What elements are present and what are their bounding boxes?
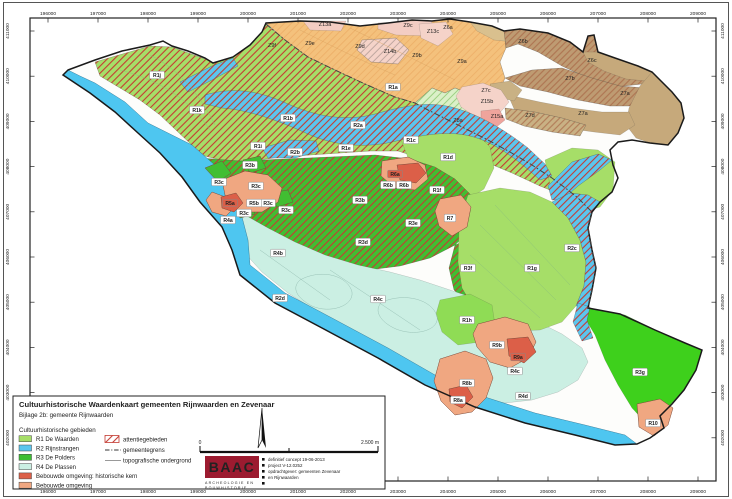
- map-canvas: 1960001960001970001970001980001980001990…: [0, 0, 732, 499]
- y-tick-label: 409000: [720, 113, 726, 129]
- region-label-Z7b: Z7b: [565, 76, 574, 82]
- x-tick-label: 205000: [490, 11, 506, 17]
- baac-sub1: ARCHEOLOGIE EN: [205, 481, 254, 485]
- y-tick-label: 408000: [720, 158, 726, 174]
- x-tick-label: 201000: [290, 489, 306, 495]
- region-label-Z14b: Z14b: [384, 49, 397, 55]
- y-tick-label: 406000: [5, 249, 11, 265]
- region-label-text: R2b: [290, 150, 300, 156]
- x-tick-label: 203000: [390, 11, 406, 17]
- region-label-R8b: R8b: [460, 379, 475, 387]
- scale-end: 2.500 m: [361, 440, 379, 446]
- region-label-text: R4b: [273, 251, 283, 257]
- region-label-Z9d: Z9d: [355, 44, 364, 50]
- region-label-R3e: R3e: [406, 219, 421, 227]
- legend: Cultuurhistorische Waardenkaart gemeente…: [13, 396, 385, 490]
- legend-swatch: [19, 482, 32, 488]
- legend-item-label: R3 De Polders: [36, 456, 75, 462]
- region-label-text: R4c: [510, 369, 520, 375]
- region-label-text: R3b: [355, 198, 365, 204]
- region-label-text: R8a: [453, 398, 463, 404]
- x-tick-label: 204000: [440, 11, 456, 17]
- x-tick-label: 208000: [640, 11, 656, 17]
- x-tick-label: 204000: [440, 489, 456, 495]
- legend-item-label: R2 Rijnstrangen: [36, 446, 79, 452]
- region-label-R7: R7: [444, 214, 456, 222]
- x-tick-label: 196000: [40, 489, 56, 495]
- baac-sub2: BOUWHISTORIE: [205, 486, 248, 490]
- x-tick-label: 207000: [590, 489, 606, 495]
- region-label-R3b: R3b: [243, 161, 258, 169]
- region-label-R1g: R1g: [525, 264, 540, 272]
- region-label-R6b: R6b: [381, 181, 396, 189]
- region-label-Z13c: Z13c: [427, 29, 439, 35]
- region-label-R9b: R9b: [490, 341, 505, 349]
- region-label-text: R3e: [408, 221, 418, 227]
- y-tick-label: 404000: [5, 339, 11, 355]
- region-label-Z6b: Z6b: [518, 39, 527, 45]
- y-tick-label: 402000: [5, 429, 11, 445]
- region-label-R1a: R1a: [386, 83, 401, 91]
- region-label-text: R3b: [245, 163, 255, 169]
- region-label-R6a: R6a: [388, 170, 403, 178]
- x-tick-label: 199000: [190, 489, 206, 495]
- region-label-Z9b: Z9b: [412, 53, 421, 59]
- region-label-text: R1a: [388, 85, 398, 91]
- x-tick-label: 209000: [690, 11, 706, 17]
- y-tick-label: 402000: [720, 429, 726, 445]
- y-tick-label: 405000: [720, 294, 726, 310]
- region-label-text: R4a: [223, 218, 233, 224]
- region-label-text: R8b: [462, 381, 472, 387]
- region-label-R3c: R3c: [261, 199, 276, 207]
- region-label-text: R2d: [275, 296, 285, 302]
- region-label-Z9a: Z9a: [457, 59, 467, 65]
- legend-item-label: Bebouwde omgeving: [36, 484, 92, 490]
- region-label-R4b: R4b: [271, 249, 286, 257]
- region-label-R6b: R6b: [397, 181, 412, 189]
- x-tick-label: 199000: [190, 11, 206, 17]
- region-label-R1i: R1i: [251, 142, 266, 150]
- region-label-R2b: R2b: [288, 148, 303, 156]
- region-label-Z8a: Z8a: [453, 118, 463, 124]
- legend-item-label: R4 De Plassen: [36, 465, 76, 471]
- region-label-text: R1b: [283, 116, 293, 122]
- region-label-R1j: R1j: [150, 71, 165, 79]
- legend-overlay-label: gemeentegrens: [123, 448, 165, 454]
- region-label-R9a: R9a: [511, 353, 526, 361]
- region-label-text: R6a: [390, 172, 400, 178]
- y-tick-label: 407000: [720, 203, 726, 219]
- region-label-R4a: R4a: [221, 216, 236, 224]
- region-label-R3f: R3f: [461, 264, 476, 272]
- region-label-text: R1i: [254, 144, 263, 150]
- region-label-R1b: R1b: [281, 114, 296, 122]
- region-label-text: R9a: [513, 355, 523, 361]
- credit-line: definitief concept 19-06-2013: [268, 457, 325, 462]
- scale-start: 0: [199, 440, 202, 446]
- x-tick-label: 202000: [340, 11, 356, 17]
- legend-title: Cultuurhistorische Waardenkaart gemeente…: [19, 400, 274, 409]
- map-page: 1960001960001970001970001980001980001990…: [0, 0, 732, 499]
- region-label-text: R3f: [464, 266, 473, 272]
- region-label-R3b: R3b: [353, 196, 368, 204]
- region-label-text: R3c: [214, 180, 224, 186]
- region-label-text: R3c: [251, 184, 261, 190]
- x-tick-label: 205000: [490, 489, 506, 495]
- x-tick-label: 206000: [540, 489, 556, 495]
- region-label-text: R3d: [358, 240, 368, 246]
- region-label-R3c: R3c: [237, 209, 252, 217]
- y-tick-label: 403000: [5, 384, 11, 400]
- y-tick-label: 404000: [720, 339, 726, 355]
- attentie-hatch-swatch: [105, 436, 119, 443]
- region-label-Z7a: Z7a: [578, 111, 588, 117]
- x-tick-label: 198000: [140, 489, 156, 495]
- region-label-R3c: R3c: [279, 206, 294, 214]
- region-label-Z9f: Z9f: [268, 43, 276, 49]
- region-label-Z6a: Z6a: [443, 25, 453, 31]
- region-label-R3c: R3c: [249, 182, 264, 190]
- legend-overlay-label: attentiegebieden: [123, 438, 167, 444]
- baac-logo-text: BAAC: [209, 459, 255, 475]
- legend-group-title: Cultuurhistorische gebieden: [19, 427, 96, 434]
- legend-swatch: [19, 473, 32, 479]
- region-label-Z15b: Z15b: [481, 99, 494, 105]
- x-tick-label: 203000: [390, 489, 406, 495]
- region-label-text: R3c: [239, 211, 249, 217]
- region-label-Z13a: Z13a: [319, 22, 332, 28]
- region-label-text: R1f: [433, 188, 442, 194]
- credit-line: opdrachtgever: gemeenten Zevenaar: [268, 469, 341, 474]
- region-label-Z9e: Z9e: [305, 41, 314, 47]
- region-label-text: R3c: [263, 201, 273, 207]
- region-label-text: R5b: [249, 201, 259, 207]
- region-label-text: R6b: [399, 183, 409, 189]
- region-label-text: R1j: [153, 73, 162, 79]
- x-tick-label: 202000: [340, 489, 356, 495]
- region-label-text: R4d: [518, 394, 528, 400]
- y-tick-label: 411000: [5, 23, 11, 39]
- region-label-text: R1g: [527, 266, 537, 272]
- region-label-Z7d: Z7d: [525, 113, 534, 119]
- y-tick-label: 409000: [5, 113, 11, 129]
- x-tick-label: 200000: [240, 11, 256, 17]
- region-label-text: R3g: [635, 370, 645, 376]
- legend-swatch: [19, 436, 32, 442]
- region-label-text: R3c: [281, 208, 291, 214]
- y-tick-label: 410000: [720, 68, 726, 84]
- region-label-text: R7: [447, 216, 454, 222]
- x-tick-label: 198000: [140, 11, 156, 17]
- region-label-text: R10: [648, 421, 658, 427]
- legend-swatch: [19, 464, 32, 470]
- region-label-text: R2c: [567, 246, 577, 252]
- legend-swatch: [19, 445, 32, 451]
- region-label-R2d: R2d: [273, 294, 288, 302]
- credit-line: en Rijnwaarden: [268, 475, 299, 480]
- region-label-R8a: R8a: [451, 396, 466, 404]
- y-tick-label: 408000: [5, 158, 11, 174]
- region-label-text: R5a: [225, 201, 235, 207]
- region-label-Z9c: Z9c: [403, 23, 412, 29]
- legend-swatch: [19, 454, 32, 460]
- region-label-text: R1k: [192, 108, 202, 114]
- region-label-R1k: R1k: [190, 106, 205, 114]
- x-tick-label: 209000: [690, 489, 706, 495]
- region-label-R1f: R1f: [430, 186, 445, 194]
- region-label-Z7c: Z7c: [481, 88, 490, 94]
- region-label-R10: R10: [646, 419, 661, 427]
- legend-subtitle: Bijlage 2b: gemeente Rijnwaarden: [19, 412, 114, 419]
- y-tick-label: 411000: [720, 23, 726, 39]
- region-label-text: R1d: [443, 155, 453, 161]
- region-label-R2c: R2c: [565, 244, 580, 252]
- region-label-Z6c: Z6c: [587, 58, 596, 64]
- region-label-R1e: R1e: [339, 144, 354, 152]
- x-tick-label: 196000: [40, 11, 56, 17]
- x-tick-label: 197000: [90, 489, 106, 495]
- region-label-Z15a: Z15a: [491, 114, 504, 120]
- legend-item-label: R1 De Waarden: [36, 437, 79, 443]
- y-tick-label: 407000: [5, 203, 11, 219]
- region-label-text: R6b: [383, 183, 393, 189]
- y-tick-label: 410000: [5, 68, 11, 84]
- x-tick-label: 207000: [590, 11, 606, 17]
- legend-item-label: Bebouwde omgeving: historische kern: [36, 474, 137, 480]
- region-label-R1c: R1c: [404, 136, 419, 144]
- region-label-R5a: R5a: [223, 199, 238, 207]
- region-label-text: R2a: [353, 123, 363, 129]
- region-label-text: R1h: [462, 318, 472, 324]
- credit-line: project V-12.0252: [268, 463, 303, 468]
- region-label-R3d: R3d: [356, 238, 371, 246]
- region-label-R3c: R3c: [212, 178, 227, 186]
- y-tick-label: 405000: [5, 294, 11, 310]
- region-label-R4d: R4d: [516, 392, 531, 400]
- region-label-R5b: R5b: [247, 199, 262, 207]
- region-label-R1d: R1d: [441, 153, 456, 161]
- region-label-text: R4c: [373, 297, 383, 303]
- region-label-R4c: R4c: [508, 367, 523, 375]
- x-tick-label: 206000: [540, 11, 556, 17]
- x-tick-label: 208000: [640, 489, 656, 495]
- region-label-R3g: R3g: [633, 368, 648, 376]
- region-label-text: R1e: [341, 146, 351, 152]
- region-label-R4c: R4c: [371, 295, 386, 303]
- region-label-text: R1c: [406, 138, 416, 144]
- legend-overlay-label: topografische ondergrond: [123, 459, 191, 465]
- y-tick-label: 406000: [720, 249, 726, 265]
- region-label-R1h: R1h: [460, 316, 475, 324]
- region-label-R2a: R2a: [351, 121, 366, 129]
- y-tick-label: 403000: [720, 384, 726, 400]
- x-tick-label: 201000: [290, 11, 306, 17]
- x-tick-label: 197000: [90, 11, 106, 17]
- region-label-text: R9b: [492, 343, 502, 349]
- region-label-Z7a: Z7a: [620, 91, 630, 97]
